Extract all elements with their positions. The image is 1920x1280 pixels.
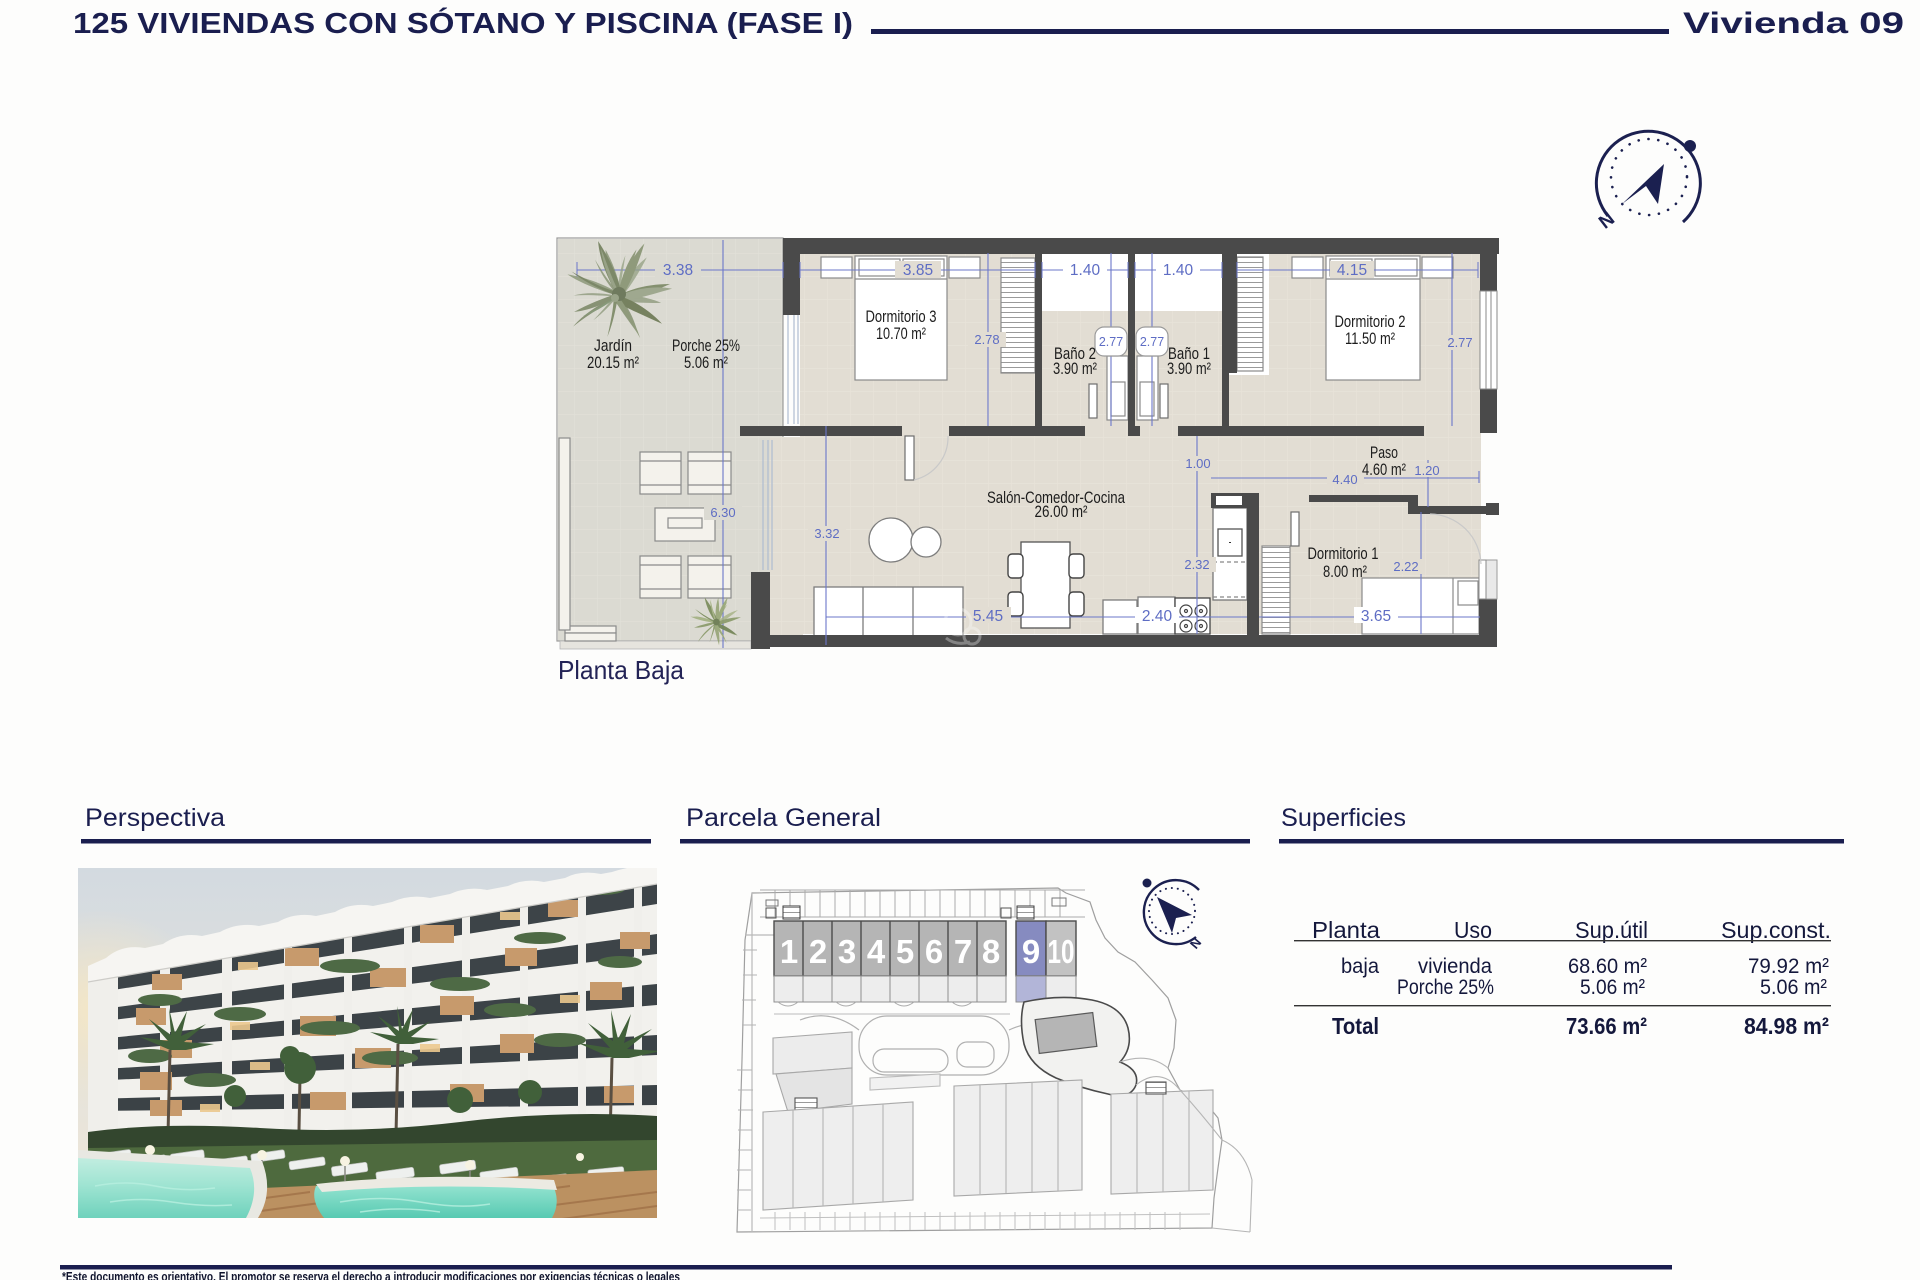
svg-text:2.77: 2.77 bbox=[1140, 335, 1164, 349]
svg-text:9: 9 bbox=[1022, 933, 1040, 970]
svg-text:2.22: 2.22 bbox=[1393, 559, 1418, 574]
svg-text:Sup.const.: Sup.const. bbox=[1721, 917, 1831, 943]
svg-text:vivienda: vivienda bbox=[1418, 955, 1492, 978]
svg-text:4: 4 bbox=[867, 933, 886, 970]
svg-text:3.90 m²: 3.90 m² bbox=[1053, 359, 1097, 378]
svg-text:2.77: 2.77 bbox=[1447, 335, 1472, 350]
svg-text:Perspectiva: Perspectiva bbox=[85, 804, 225, 832]
svg-text:N: N bbox=[1595, 208, 1619, 233]
svg-text:2.40: 2.40 bbox=[1142, 608, 1173, 625]
svg-text:79.92 m²: 79.92 m² bbox=[1748, 955, 1829, 978]
svg-text:5: 5 bbox=[896, 933, 914, 970]
svg-text:N: N bbox=[1187, 935, 1205, 952]
svg-text:baja: baja bbox=[1341, 955, 1379, 978]
svg-text:Sup.útil: Sup.útil bbox=[1575, 917, 1648, 943]
svg-text:1.20: 1.20 bbox=[1414, 463, 1439, 478]
svg-text:*Este documento es orientativo: *Este documento es orientativo. El promo… bbox=[62, 1270, 680, 1280]
svg-text:1: 1 bbox=[780, 933, 798, 970]
svg-text:Superficies: Superficies bbox=[1281, 804, 1406, 832]
svg-text:Planta: Planta bbox=[1312, 917, 1380, 943]
svg-text:3.65: 3.65 bbox=[1361, 608, 1391, 625]
svg-text:5.06 m²: 5.06 m² bbox=[1580, 976, 1645, 999]
svg-text:6.30: 6.30 bbox=[710, 505, 735, 520]
svg-text:6: 6 bbox=[925, 933, 943, 970]
svg-text:2.77: 2.77 bbox=[1099, 335, 1123, 349]
svg-text:8.00 m²: 8.00 m² bbox=[1323, 562, 1367, 581]
svg-text:Parcela General: Parcela General bbox=[686, 804, 881, 832]
svg-text:3.38: 3.38 bbox=[663, 262, 693, 279]
svg-text:84.98 m²: 84.98 m² bbox=[1744, 1013, 1829, 1039]
svg-text:2.78: 2.78 bbox=[974, 332, 999, 347]
svg-text:Total: Total bbox=[1332, 1013, 1379, 1039]
svg-text:Porche 25%: Porche 25% bbox=[1397, 976, 1494, 999]
svg-text:1.00: 1.00 bbox=[1185, 456, 1210, 471]
svg-text:7: 7 bbox=[954, 933, 972, 970]
svg-text:4.40: 4.40 bbox=[1332, 472, 1357, 487]
svg-text:2: 2 bbox=[809, 933, 827, 970]
svg-text:1.40: 1.40 bbox=[1070, 262, 1101, 279]
svg-text:11.50 m²: 11.50 m² bbox=[1345, 329, 1395, 348]
svg-text:3.85: 3.85 bbox=[903, 262, 933, 279]
svg-text:3.90 m²: 3.90 m² bbox=[1167, 359, 1211, 378]
svg-text:5.06 m²: 5.06 m² bbox=[1760, 976, 1827, 999]
svg-text:26.00 m²: 26.00 m² bbox=[1035, 502, 1088, 521]
svg-text:20.15 m²: 20.15 m² bbox=[587, 353, 639, 372]
svg-text:5.45: 5.45 bbox=[973, 608, 1003, 625]
svg-text:Dormitorio 1: Dormitorio 1 bbox=[1308, 544, 1379, 563]
svg-text:Planta Baja: Planta Baja bbox=[558, 655, 685, 685]
svg-text:3.32: 3.32 bbox=[814, 526, 839, 541]
svg-text:5.06 m²: 5.06 m² bbox=[684, 353, 728, 372]
svg-text:68.60 m²: 68.60 m² bbox=[1568, 955, 1647, 978]
svg-text:2.32: 2.32 bbox=[1184, 557, 1209, 572]
svg-text:4.60 m²: 4.60 m² bbox=[1362, 460, 1406, 479]
svg-text:4.15: 4.15 bbox=[1337, 262, 1367, 279]
svg-text:1.40: 1.40 bbox=[1163, 262, 1194, 279]
svg-text:10: 10 bbox=[1048, 933, 1075, 970]
svg-text:Uso: Uso bbox=[1454, 917, 1492, 943]
svg-text:73.66 m²: 73.66 m² bbox=[1566, 1013, 1647, 1039]
svg-text:8: 8 bbox=[982, 933, 1000, 970]
svg-text:10.70 m²: 10.70 m² bbox=[876, 324, 926, 343]
svg-text:3: 3 bbox=[838, 933, 856, 970]
svg-text:Vivienda 09: Vivienda 09 bbox=[1683, 7, 1904, 40]
svg-text:125 VIVIENDAS CON SÓTANO Y PIS: 125 VIVIENDAS CON SÓTANO Y PISCINA (FASE… bbox=[73, 6, 853, 40]
